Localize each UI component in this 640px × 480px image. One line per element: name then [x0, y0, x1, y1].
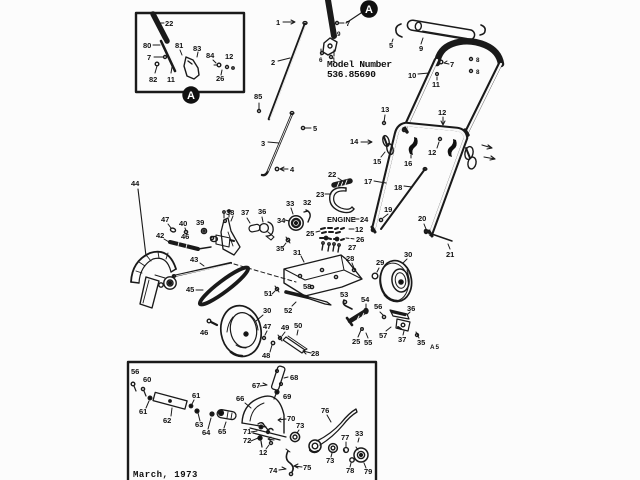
- svg-text:76: 76: [321, 406, 329, 415]
- svg-text:82: 82: [149, 75, 157, 84]
- svg-text:36: 36: [258, 207, 266, 216]
- svg-text:65: 65: [218, 427, 226, 436]
- svg-text:85: 85: [254, 92, 262, 101]
- svg-text:81: 81: [175, 41, 183, 50]
- svg-text:28: 28: [346, 254, 354, 263]
- svg-text:25: 25: [352, 337, 360, 346]
- svg-text:52: 52: [284, 306, 292, 315]
- svg-text:61: 61: [192, 391, 200, 400]
- svg-text:7: 7: [450, 60, 454, 69]
- svg-text:58: 58: [303, 282, 311, 291]
- svg-text:75: 75: [303, 463, 311, 472]
- svg-text:35: 35: [276, 244, 284, 253]
- svg-text:23: 23: [316, 190, 324, 199]
- svg-text:19: 19: [384, 205, 392, 214]
- svg-text:17: 17: [364, 177, 372, 186]
- svg-text:50: 50: [294, 321, 302, 330]
- svg-text:A: A: [187, 90, 195, 102]
- svg-text:14: 14: [350, 137, 359, 146]
- svg-text:35: 35: [417, 338, 425, 347]
- svg-text:28: 28: [311, 349, 319, 358]
- svg-text:73: 73: [296, 421, 304, 430]
- svg-text:9: 9: [337, 31, 341, 38]
- svg-text:7: 7: [346, 19, 350, 28]
- svg-text:12: 12: [225, 52, 233, 61]
- svg-text:72: 72: [243, 436, 251, 445]
- svg-text:37: 37: [398, 335, 406, 344]
- svg-text:30: 30: [404, 250, 412, 259]
- svg-text:3: 3: [261, 139, 265, 148]
- svg-text:45: 45: [186, 285, 194, 294]
- svg-text:26: 26: [216, 74, 224, 83]
- svg-text:22: 22: [165, 19, 173, 28]
- svg-text:24: 24: [360, 215, 369, 224]
- svg-text:77: 77: [341, 433, 349, 442]
- svg-text:5: 5: [389, 41, 393, 50]
- svg-text:80: 80: [143, 41, 151, 50]
- svg-text:31: 31: [293, 248, 301, 257]
- svg-text:A5: A5: [430, 344, 440, 351]
- svg-text:16: 16: [404, 159, 412, 168]
- svg-text:12: 12: [355, 225, 363, 234]
- svg-text:42: 42: [156, 231, 164, 240]
- svg-text:71: 71: [243, 427, 251, 436]
- svg-text:26: 26: [356, 235, 364, 244]
- svg-text:18: 18: [394, 183, 402, 192]
- svg-text:7: 7: [147, 53, 151, 62]
- svg-text:84: 84: [206, 51, 215, 60]
- svg-text:36: 36: [407, 304, 415, 313]
- svg-text:57: 57: [379, 331, 387, 340]
- svg-text:ENGINE: ENGINE: [327, 215, 356, 224]
- svg-text:55: 55: [364, 338, 372, 347]
- svg-text:March, 1973: March, 1973: [133, 470, 198, 480]
- svg-text:43: 43: [190, 255, 198, 264]
- svg-text:39: 39: [196, 218, 204, 227]
- svg-text:4: 4: [290, 165, 295, 174]
- svg-text:15: 15: [373, 157, 381, 166]
- svg-text:49: 49: [281, 323, 289, 332]
- svg-text:54: 54: [361, 295, 370, 304]
- svg-text:70: 70: [287, 414, 295, 423]
- svg-text:73: 73: [326, 456, 334, 465]
- svg-text:56: 56: [131, 367, 139, 376]
- svg-text:67: 67: [252, 381, 260, 390]
- svg-text:29: 29: [376, 258, 384, 267]
- svg-text:60: 60: [143, 375, 151, 384]
- svg-text:22: 22: [328, 170, 336, 179]
- svg-text:6: 6: [319, 57, 323, 64]
- svg-text:74: 74: [269, 466, 278, 475]
- svg-text:21: 21: [446, 250, 454, 259]
- svg-text:11: 11: [167, 75, 175, 84]
- svg-text:32: 32: [303, 198, 311, 207]
- svg-text:10: 10: [408, 71, 416, 80]
- svg-text:536.85690: 536.85690: [327, 69, 376, 80]
- svg-text:12: 12: [438, 108, 446, 117]
- svg-text:68: 68: [290, 373, 298, 382]
- svg-text:33: 33: [355, 429, 363, 438]
- svg-text:40: 40: [179, 219, 187, 228]
- svg-text:11: 11: [432, 80, 440, 89]
- svg-text:48: 48: [262, 351, 270, 360]
- svg-text:12: 12: [428, 148, 436, 157]
- svg-text:30: 30: [263, 306, 271, 315]
- svg-text:33: 33: [286, 199, 294, 208]
- svg-text:5: 5: [313, 124, 317, 133]
- svg-text:69: 69: [283, 392, 291, 401]
- svg-text:56: 56: [374, 302, 382, 311]
- svg-text:9: 9: [419, 44, 423, 53]
- svg-text:34: 34: [277, 216, 286, 225]
- svg-text:47: 47: [263, 322, 271, 331]
- svg-text:46: 46: [181, 232, 189, 241]
- svg-text:2: 2: [271, 58, 275, 67]
- svg-text:38: 38: [226, 208, 234, 217]
- svg-text:83: 83: [193, 44, 201, 53]
- svg-text:20: 20: [418, 214, 426, 223]
- svg-text:66: 66: [236, 394, 244, 403]
- svg-text:27: 27: [348, 243, 356, 252]
- svg-text:47: 47: [161, 215, 169, 224]
- svg-text:64: 64: [202, 428, 211, 437]
- svg-text:62: 62: [163, 416, 171, 425]
- svg-text:25: 25: [306, 229, 314, 238]
- svg-text:44: 44: [131, 179, 140, 188]
- svg-text:1: 1: [276, 18, 280, 27]
- svg-text:37: 37: [241, 208, 249, 217]
- svg-text:46: 46: [200, 328, 208, 337]
- svg-text:53: 53: [340, 290, 348, 299]
- svg-text:A: A: [365, 4, 373, 16]
- svg-text:79: 79: [364, 467, 372, 476]
- svg-text:8: 8: [476, 69, 480, 76]
- svg-text:13: 13: [381, 105, 389, 114]
- svg-text:51: 51: [264, 289, 272, 298]
- svg-text:8: 8: [476, 57, 480, 64]
